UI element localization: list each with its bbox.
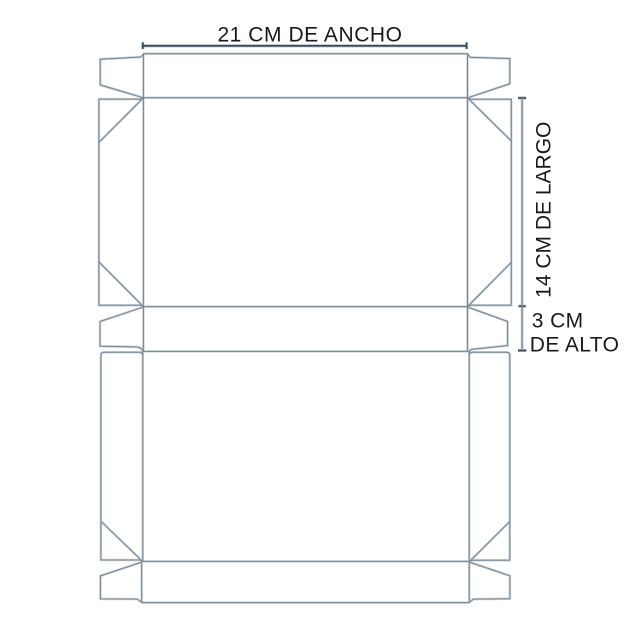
svg-text:21 CM DE ANCHO: 21 CM DE ANCHO bbox=[217, 23, 402, 46]
svg-text:DE ALTO: DE ALTO bbox=[530, 334, 620, 357]
svg-text:3 CM: 3 CM bbox=[532, 310, 584, 333]
svg-text:14 CM DE LARGO: 14 CM DE LARGO bbox=[532, 122, 555, 298]
